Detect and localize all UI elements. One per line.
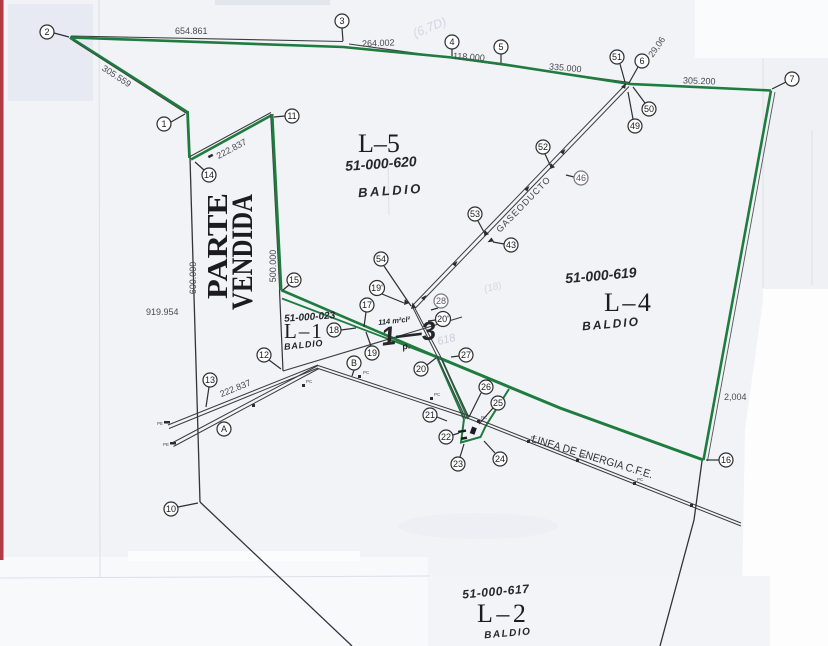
svg-text:24: 24	[495, 454, 505, 464]
svg-text:13: 13	[205, 375, 215, 385]
svg-text:5: 5	[498, 42, 503, 52]
svg-text:B: B	[351, 358, 357, 368]
svg-text:19': 19'	[371, 283, 383, 293]
svg-text:PE: PE	[163, 442, 169, 447]
svg-text:25: 25	[493, 398, 503, 408]
svg-text:L–2: L–2	[477, 599, 529, 628]
svg-text:15: 15	[289, 275, 299, 285]
svg-text:A: A	[221, 424, 227, 434]
svg-text:49: 49	[630, 121, 640, 131]
svg-text:600.000: 600.000	[188, 262, 198, 295]
svg-text:26: 26	[481, 382, 491, 392]
svg-text:7: 7	[789, 74, 794, 84]
svg-text:654.861: 654.861	[175, 26, 208, 36]
svg-text:2: 2	[44, 27, 49, 37]
svg-text:28: 28	[436, 296, 446, 306]
svg-text:11: 11	[287, 111, 296, 121]
svg-text:21: 21	[425, 410, 435, 420]
svg-text:264.002: 264.002	[362, 37, 395, 48]
svg-text:17: 17	[362, 300, 372, 310]
svg-text:919.954: 919.954	[146, 307, 179, 317]
svg-text:18: 18	[329, 325, 339, 335]
svg-text:10: 10	[166, 504, 176, 514]
svg-text:16: 16	[721, 455, 731, 465]
svg-text:46: 46	[576, 173, 586, 183]
svg-text:PC: PC	[363, 370, 370, 375]
svg-text:52: 52	[538, 142, 548, 152]
svg-text:1: 1	[161, 119, 166, 129]
svg-text:6: 6	[639, 56, 644, 66]
svg-text:305.200: 305.200	[683, 75, 716, 86]
svg-text:50: 50	[644, 104, 654, 114]
svg-text:43: 43	[506, 240, 516, 250]
svg-text:2,004: 2,004	[724, 392, 747, 402]
svg-text:20': 20'	[437, 314, 449, 324]
svg-text:27: 27	[461, 350, 471, 360]
svg-text:19: 19	[367, 348, 377, 358]
svg-text:12: 12	[259, 350, 269, 360]
svg-text:4: 4	[449, 37, 454, 47]
svg-text:3: 3	[339, 16, 344, 26]
svg-text:PC: PC	[434, 392, 441, 397]
svg-text:20: 20	[416, 364, 426, 374]
svg-text:54: 54	[376, 254, 386, 264]
svg-text:22: 22	[441, 432, 451, 442]
svg-text:53: 53	[470, 209, 480, 219]
svg-text:PC: PC	[306, 379, 313, 384]
svg-text:L–4: L–4	[604, 288, 653, 317]
svg-text:23: 23	[453, 459, 463, 469]
svg-text:14: 14	[204, 170, 214, 180]
svg-text:51: 51	[612, 52, 622, 62]
svg-text:500.000: 500.000	[268, 250, 278, 283]
svg-text:VENDIDA: VENDIDA	[226, 194, 259, 310]
svg-text:PE: PE	[157, 421, 163, 426]
